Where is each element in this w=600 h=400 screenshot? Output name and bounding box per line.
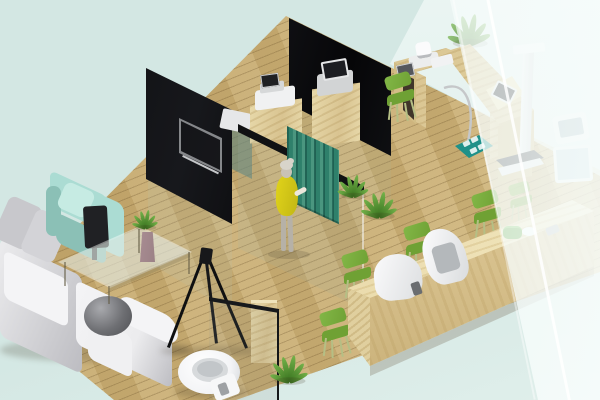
green-chair xyxy=(316,310,352,358)
chair-leg xyxy=(404,103,409,121)
person-leg xyxy=(287,215,293,252)
standing-person xyxy=(270,158,310,258)
plant-vase xyxy=(140,232,155,262)
toilet-inner xyxy=(197,361,223,377)
chair-back xyxy=(341,249,370,270)
blood-pressure-device xyxy=(415,41,433,59)
person-hair-bun xyxy=(287,158,294,164)
chair-back xyxy=(319,307,348,328)
chair-leg xyxy=(396,104,399,122)
table-plant xyxy=(132,204,158,228)
table-leg xyxy=(64,262,66,286)
printer-screen xyxy=(260,73,280,88)
table-leg xyxy=(138,229,140,253)
table-leg xyxy=(108,286,110,304)
chair-leg xyxy=(331,340,334,358)
chair-leg xyxy=(410,100,417,118)
chair-back xyxy=(384,71,413,92)
interior-render xyxy=(0,0,600,400)
floor-plant-2 xyxy=(361,183,397,217)
person-leg xyxy=(281,214,286,251)
bathroom-plant xyxy=(270,346,307,381)
tripod-head xyxy=(199,247,213,265)
table-leg xyxy=(188,252,190,274)
green-chair xyxy=(381,74,417,122)
chair-leg xyxy=(339,339,344,357)
